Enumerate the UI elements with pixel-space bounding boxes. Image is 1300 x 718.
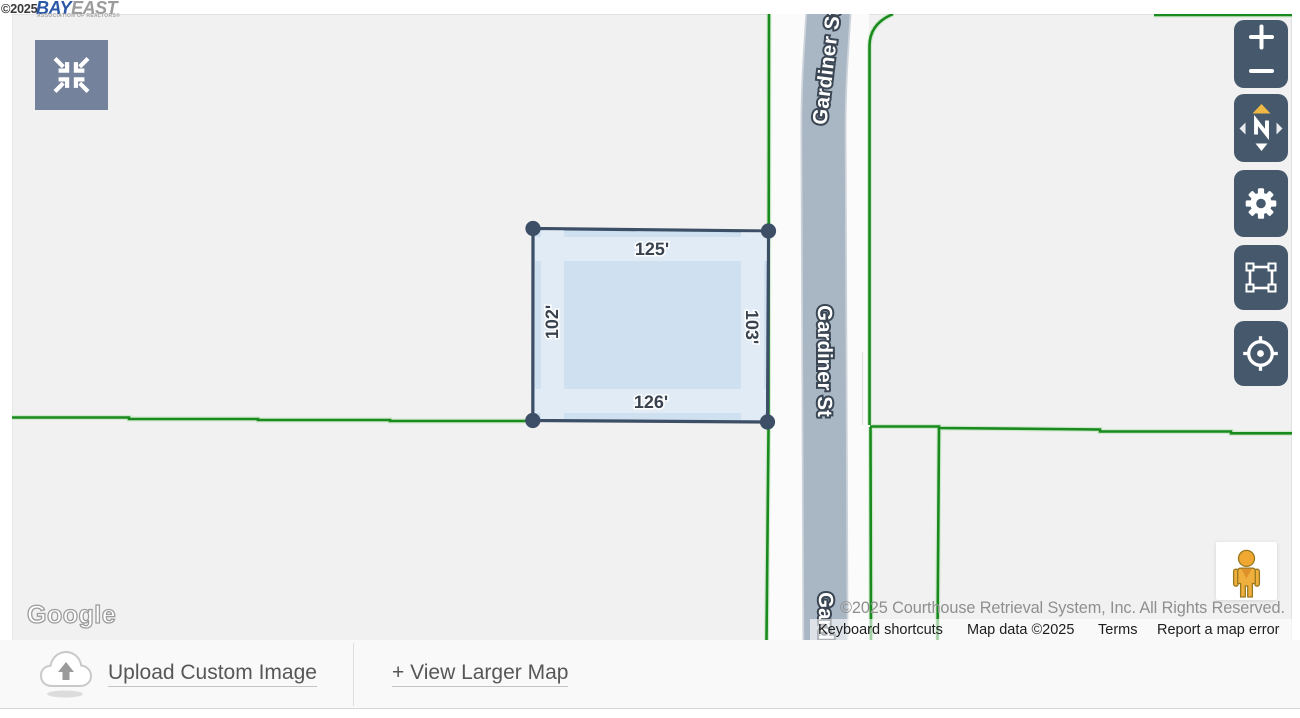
svg-text:Gardiner St: Gardiner St xyxy=(813,305,836,417)
svg-text:102': 102' xyxy=(542,305,562,339)
svg-text:125': 125' xyxy=(635,239,669,259)
svg-text:103': 103' xyxy=(742,310,762,344)
svg-text:126': 126' xyxy=(634,392,668,412)
